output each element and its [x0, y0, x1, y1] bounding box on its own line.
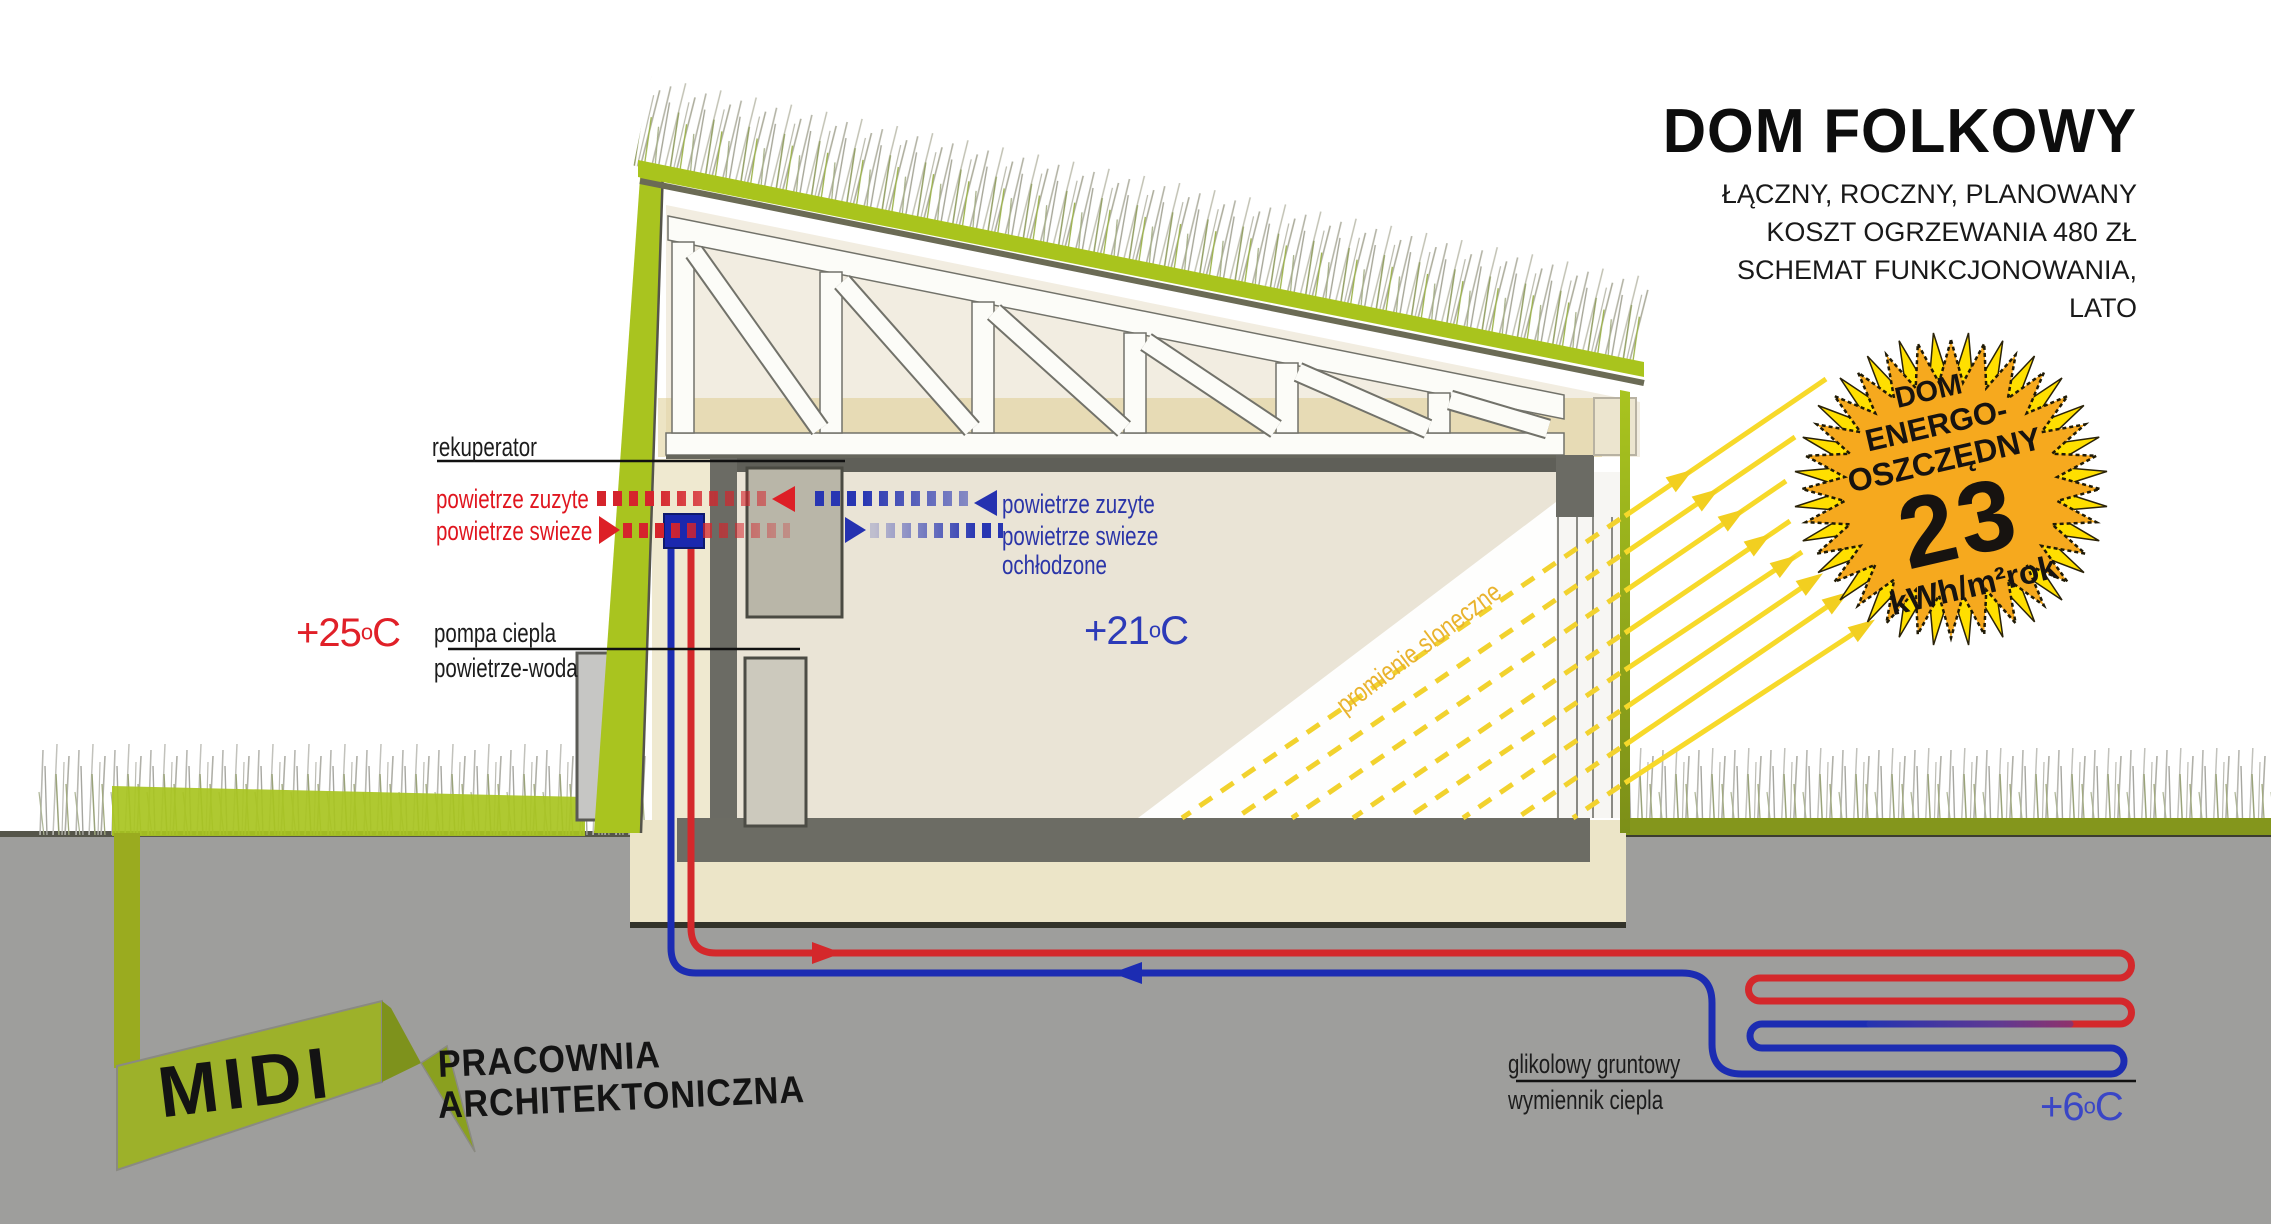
window-lintel: [1556, 455, 1594, 517]
exhaust-air-label-red: powietrze zuzyte: [436, 485, 588, 513]
exhaust-air-dashes-in: [815, 491, 972, 506]
ground-temperature: +6oC: [2040, 1086, 2123, 1128]
exhaust-in-arrow-icon: [974, 490, 997, 516]
fresh-air-dashes-out: [623, 523, 790, 538]
rekuperator-label: rekuperator: [432, 433, 537, 461]
exhaust-air-dashes-out: [597, 491, 772, 506]
fresh-air-label-blue: powietrze swieze: [1002, 522, 1158, 550]
exhaust-out-arrow-icon: [772, 486, 795, 512]
outside-temperature: +25oC: [296, 612, 400, 654]
ground-hx-label-2: wymiennik ciepla: [1508, 1086, 1663, 1114]
fresh-air-dashes-in: [870, 523, 1003, 538]
fresh-air-label-red: powietrze swieze: [436, 517, 588, 545]
page-title: DOM FOLKOWY: [1663, 99, 2137, 163]
interior-column: [710, 458, 737, 820]
subtitle-line-1: ŁĄCZNY, ROCZNY, PLANOWANY: [1663, 175, 2137, 213]
fresh-in-arrow-icon: [599, 516, 620, 544]
right-wall-green: [1620, 390, 1630, 833]
diagram-canvas: rekuperator powietrze zuzyte powietrze s…: [0, 0, 2271, 1224]
ground-hx-label-1: glikolowy gruntowy: [1508, 1050, 1680, 1078]
inside-temperature: +21oC: [1084, 610, 1188, 652]
fresh-air-label-blue-2: ochłodzone: [1002, 551, 1107, 579]
subtitle-line-2: KOSZT OGRZEWANIA 480 ZŁ: [1663, 213, 2137, 251]
heat-pump-label-1: pompa ciepla: [434, 619, 556, 647]
heat-pump-label-2: powietrze-woda: [434, 654, 578, 682]
floor-slab: [677, 818, 1590, 862]
title-block: DOM FOLKOWY ŁĄCZNY, ROCZNY, PLANOWANY KO…: [1663, 100, 2137, 327]
subtitle-line-3: SCHEMAT FUNKCJONOWANIA,: [1663, 251, 2137, 289]
ceiling-beam: [737, 458, 1556, 472]
heat-pump-indoor-unit: [745, 658, 806, 826]
window: [1556, 455, 1623, 818]
exhaust-air-label-blue: powietrze zuzyte: [1002, 490, 1155, 518]
fresh-cooled-arrow-icon: [845, 517, 866, 543]
